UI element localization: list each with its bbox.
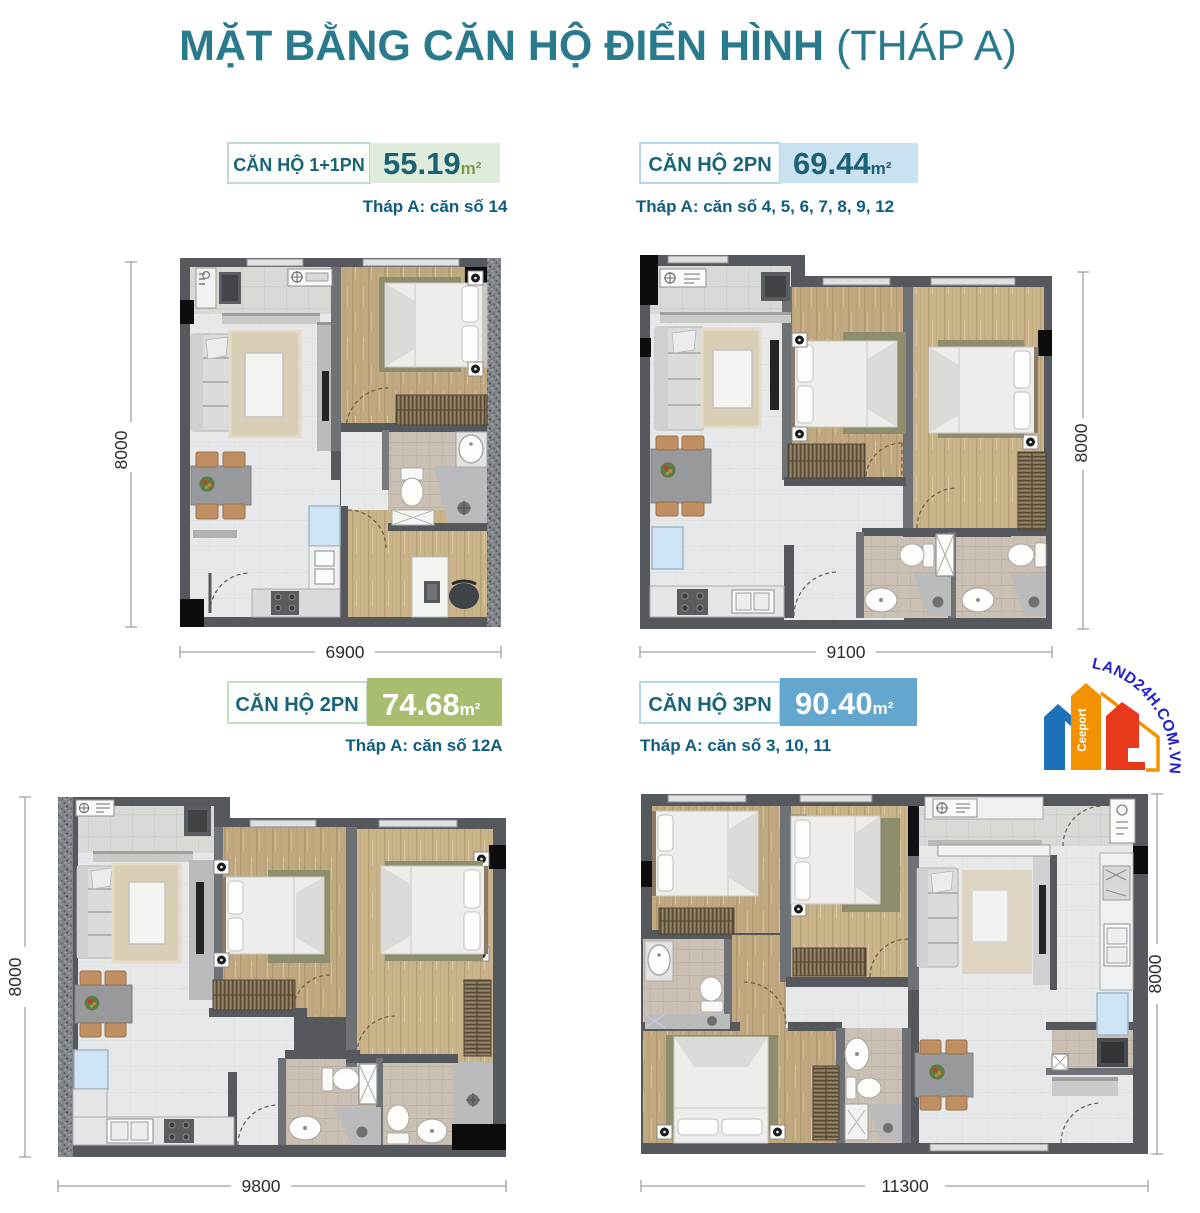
svg-text:11300: 11300 xyxy=(881,1176,929,1196)
svg-text:6900: 6900 xyxy=(326,642,365,662)
svg-text:8000: 8000 xyxy=(111,430,131,469)
svg-text:9800: 9800 xyxy=(242,1176,281,1196)
svg-text:CĂN HỘ 2PN: CĂN HỘ 2PN xyxy=(648,152,771,176)
svg-text:8000: 8000 xyxy=(5,957,25,996)
svg-text:MẶT BẰNG CĂN HỘ ĐIỂN HÌNH (THÁ: MẶT BẰNG CĂN HỘ ĐIỂN HÌNH (THÁP A) xyxy=(179,21,1017,70)
svg-text:Ceeport: Ceeport xyxy=(1077,708,1089,752)
svg-text:CĂN HỘ 1+1PN: CĂN HỘ 1+1PN xyxy=(233,154,365,175)
svg-text:Tháp A: căn số 14: Tháp A: căn số 14 xyxy=(363,197,508,216)
svg-text:Tháp A: căn số 12A: Tháp A: căn số 12A xyxy=(345,736,502,755)
svg-text:8000: 8000 xyxy=(1145,954,1165,993)
svg-text:CĂN HỘ 3PN: CĂN HỘ 3PN xyxy=(648,692,771,716)
svg-text:Tháp A: căn số 3, 10, 11: Tháp A: căn số 3, 10, 11 xyxy=(640,736,831,755)
svg-text:CĂN HỘ 2PN: CĂN HỘ 2PN xyxy=(235,692,358,716)
svg-text:Tháp A: căn số 4, 5, 6, 7, 8,: Tháp A: căn số 4, 5, 6, 7, 8, 9, 12 xyxy=(636,197,894,216)
svg-text:9100: 9100 xyxy=(827,642,866,662)
svg-text:8000: 8000 xyxy=(1071,423,1091,462)
